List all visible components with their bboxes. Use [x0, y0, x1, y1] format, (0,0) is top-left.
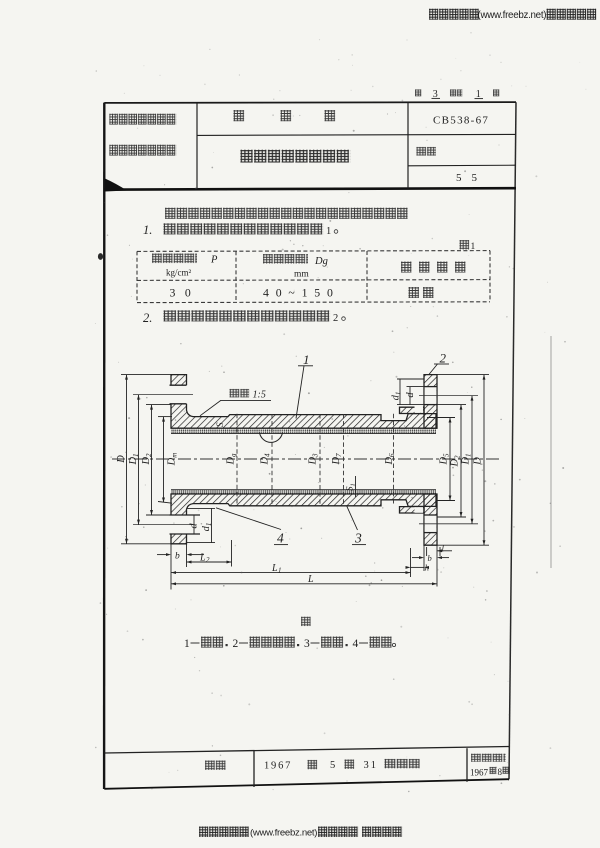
svg-text:2.: 2. — [143, 311, 152, 325]
svg-text:b: b — [428, 553, 432, 563]
svg-text:CB538-67: CB538-67 — [433, 115, 489, 127]
svg-text:4: 4 — [277, 531, 284, 546]
svg-text:30: 30 — [170, 285, 201, 299]
svg-text:D: D — [116, 455, 127, 464]
svg-text:2: 2 — [206, 556, 210, 564]
svg-text:1: 1 — [184, 638, 190, 650]
svg-text:L: L — [199, 552, 206, 563]
svg-text:3: 3 — [304, 638, 310, 650]
svg-text:40~150: 40~150 — [263, 286, 340, 300]
svg-text:(www.freebz.net): (www.freebz.net) — [478, 10, 547, 21]
svg-text:1: 1 — [326, 226, 331, 237]
svg-text:mm: mm — [294, 269, 309, 279]
svg-text:1967: 1967 — [264, 761, 292, 772]
svg-text:3: 3 — [354, 531, 362, 546]
svg-text:P: P — [210, 255, 218, 266]
svg-text:1: 1 — [303, 352, 310, 367]
svg-text:55: 55 — [456, 172, 487, 184]
svg-text:31: 31 — [364, 760, 379, 771]
svg-text:(www.freebz.net): (www.freebz.net) — [250, 827, 317, 838]
svg-text:1967: 1967 — [470, 767, 489, 777]
svg-text:2: 2 — [440, 351, 447, 366]
svg-text:4: 4 — [353, 638, 359, 650]
svg-text:S: S — [215, 422, 225, 427]
svg-text:L: L — [307, 574, 314, 585]
svg-text:b: b — [175, 552, 180, 562]
svg-text:2: 2 — [233, 638, 239, 650]
svg-text:d: d — [405, 392, 416, 398]
svg-text:Dg: Dg — [314, 256, 328, 267]
svg-text:5: 5 — [330, 760, 335, 771]
svg-text:h: h — [425, 563, 429, 573]
svg-text:d: d — [189, 523, 200, 529]
svg-text:kg/cm²: kg/cm² — [166, 267, 191, 277]
svg-text:1: 1 — [278, 566, 282, 574]
svg-text:1.: 1. — [143, 223, 152, 237]
svg-text:1:5: 1:5 — [253, 390, 266, 401]
svg-text:8: 8 — [498, 767, 503, 777]
svg-text:2: 2 — [333, 313, 338, 324]
svg-text:L: L — [271, 563, 278, 574]
